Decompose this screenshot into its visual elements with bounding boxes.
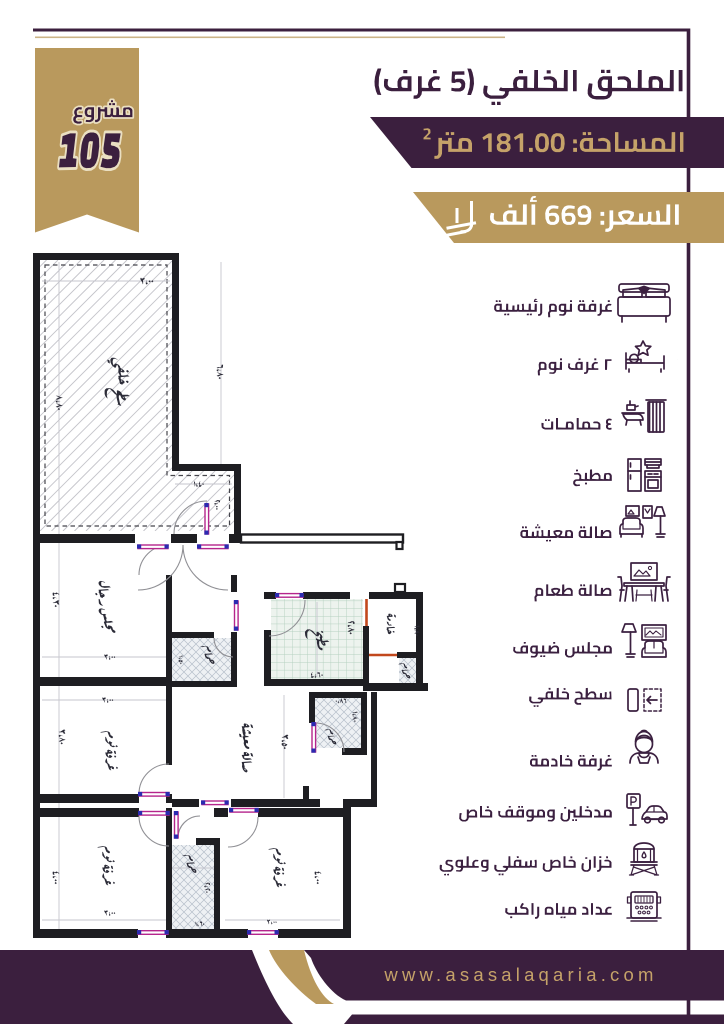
svg-text:www.asasalaqaria.com: www.asasalaqaria.com [383, 964, 657, 985]
